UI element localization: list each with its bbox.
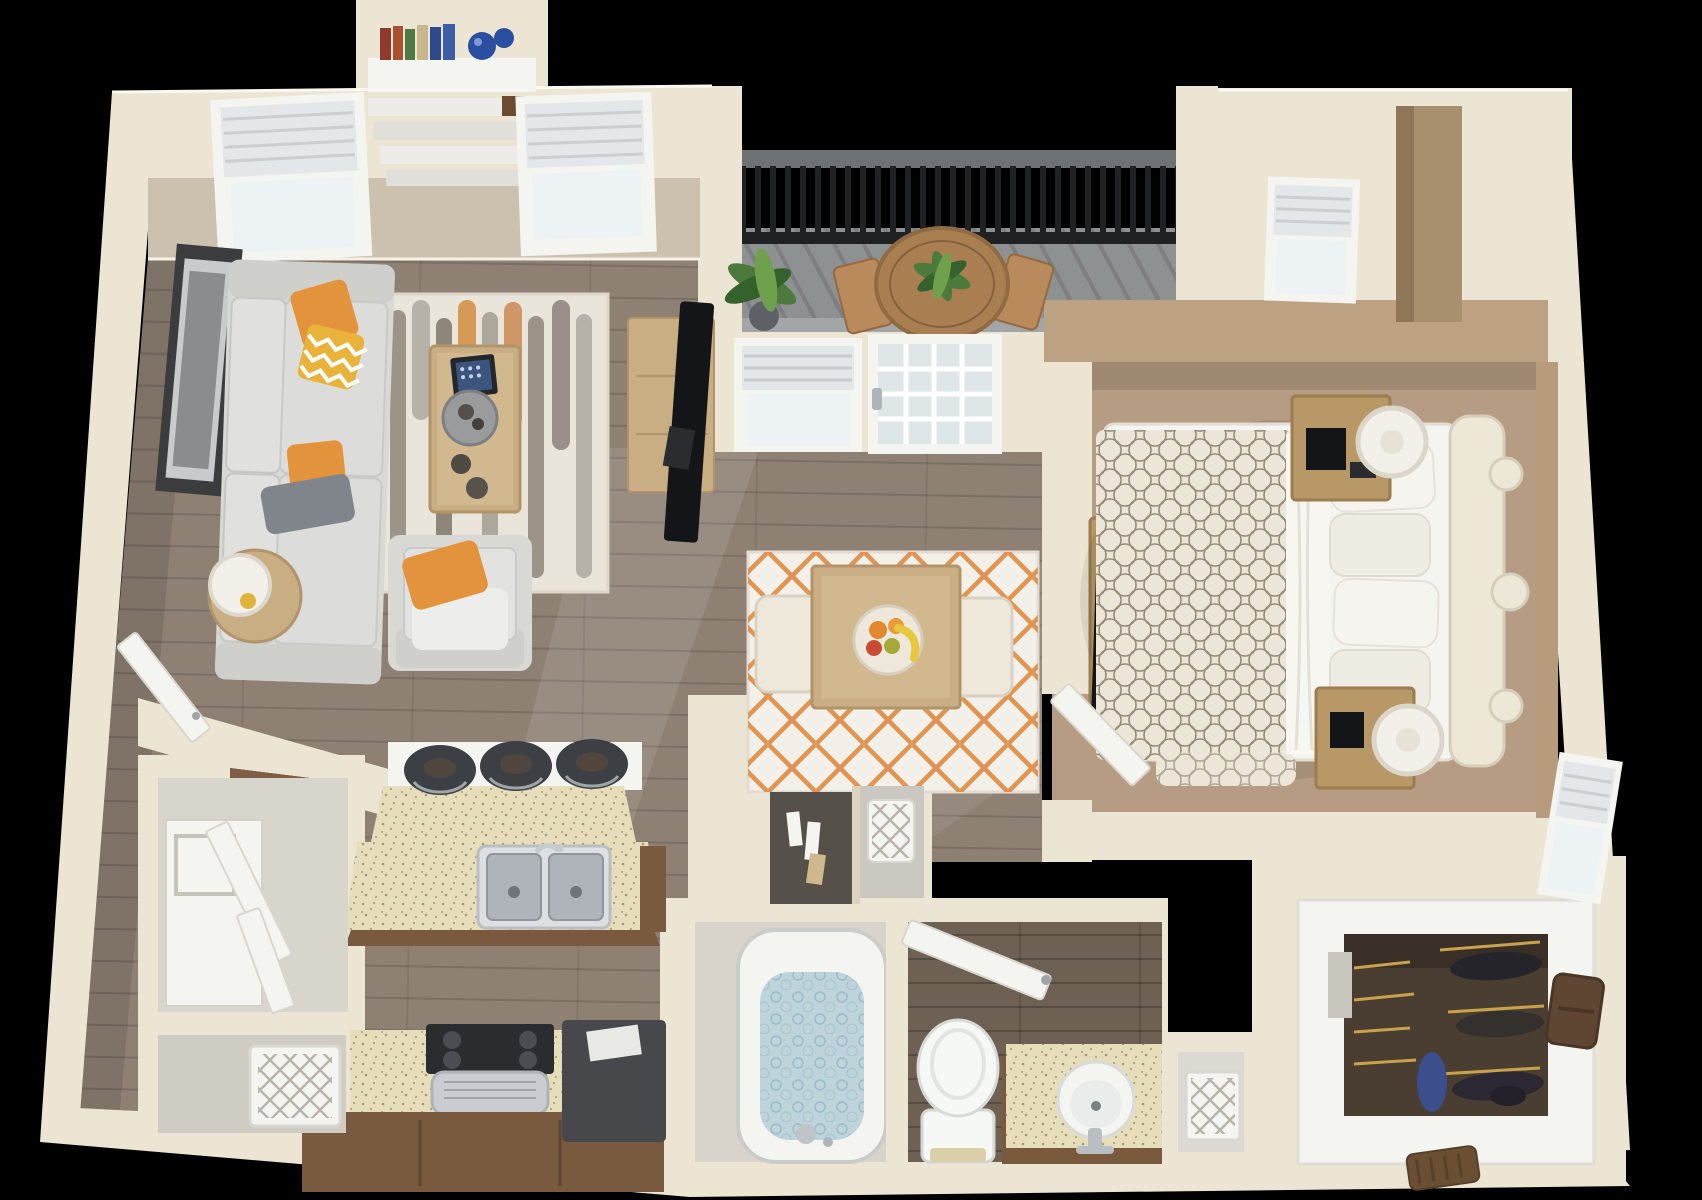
alarm-clock [1306,428,1346,470]
floor-plan-render [0,0,1702,1200]
bathtub [738,930,886,1162]
bedroom-left-wall [1042,332,1092,694]
cubby-divider [852,786,860,904]
wall-niche-shadow [1396,106,1414,322]
nightstand-decor [1330,712,1364,748]
range-area [302,1020,666,1192]
blue-decor-vase [468,32,496,60]
island-cabinet-base [345,930,660,946]
folded-towel [868,800,914,862]
linen-closet [1178,1052,1244,1152]
walk-in-closet [1298,900,1605,1191]
balcony-right-wall [1176,86,1218,334]
vanity [1002,1044,1162,1164]
door-handle [872,388,882,410]
sink-drain [1091,1101,1101,1111]
bedroom-right-wall-face [1536,362,1558,818]
entry-closets [158,778,348,1133]
island-side-panel [640,846,666,932]
railing-top-cap [742,150,1176,168]
decor-jar [451,454,471,474]
decor-jar-2 [466,477,488,499]
dining-chair-left [756,596,818,692]
bedroom-bottom-wall [1042,812,1556,860]
blue-garment [1417,1052,1447,1112]
table-lamp [210,555,270,615]
dining-area [734,334,1038,792]
hamper-basket [250,1046,340,1126]
bookshelf-top-shelf [368,58,536,92]
kitchen-sink [478,844,610,928]
window-living-left [210,92,372,264]
armchair [388,535,532,671]
tub-faucet [796,1124,816,1144]
bathroom [695,918,1162,1164]
headboard [1450,416,1528,766]
railing-slats [742,166,1176,236]
side-table [209,550,301,642]
range-hood [432,1072,548,1114]
window-living-right [515,92,657,257]
vase-highlight [474,38,482,46]
shoes [1490,1086,1526,1106]
fruit-bowl [854,606,922,674]
toilet [918,1020,998,1162]
bathroom-door-knob [1041,975,1051,985]
tub-divider-wall [886,918,908,1164]
coffee-table [430,346,520,512]
window-dining [734,338,862,452]
lamp-accent [240,593,256,609]
bedroom-carpet-shadow [1052,360,1548,390]
bedroom-wall-face [1044,300,1548,362]
cooktop [426,1024,554,1074]
closet-door-panel [1328,952,1352,1018]
barstools [404,739,628,795]
window-bedroom-back [1264,176,1360,303]
door-knob [192,712,200,720]
floor-plan-stage [0,0,1702,1200]
blue-decor-vase-small [494,28,514,48]
hall-closets [770,786,924,904]
french-door [868,334,1002,454]
toilet-mat [930,1148,986,1162]
